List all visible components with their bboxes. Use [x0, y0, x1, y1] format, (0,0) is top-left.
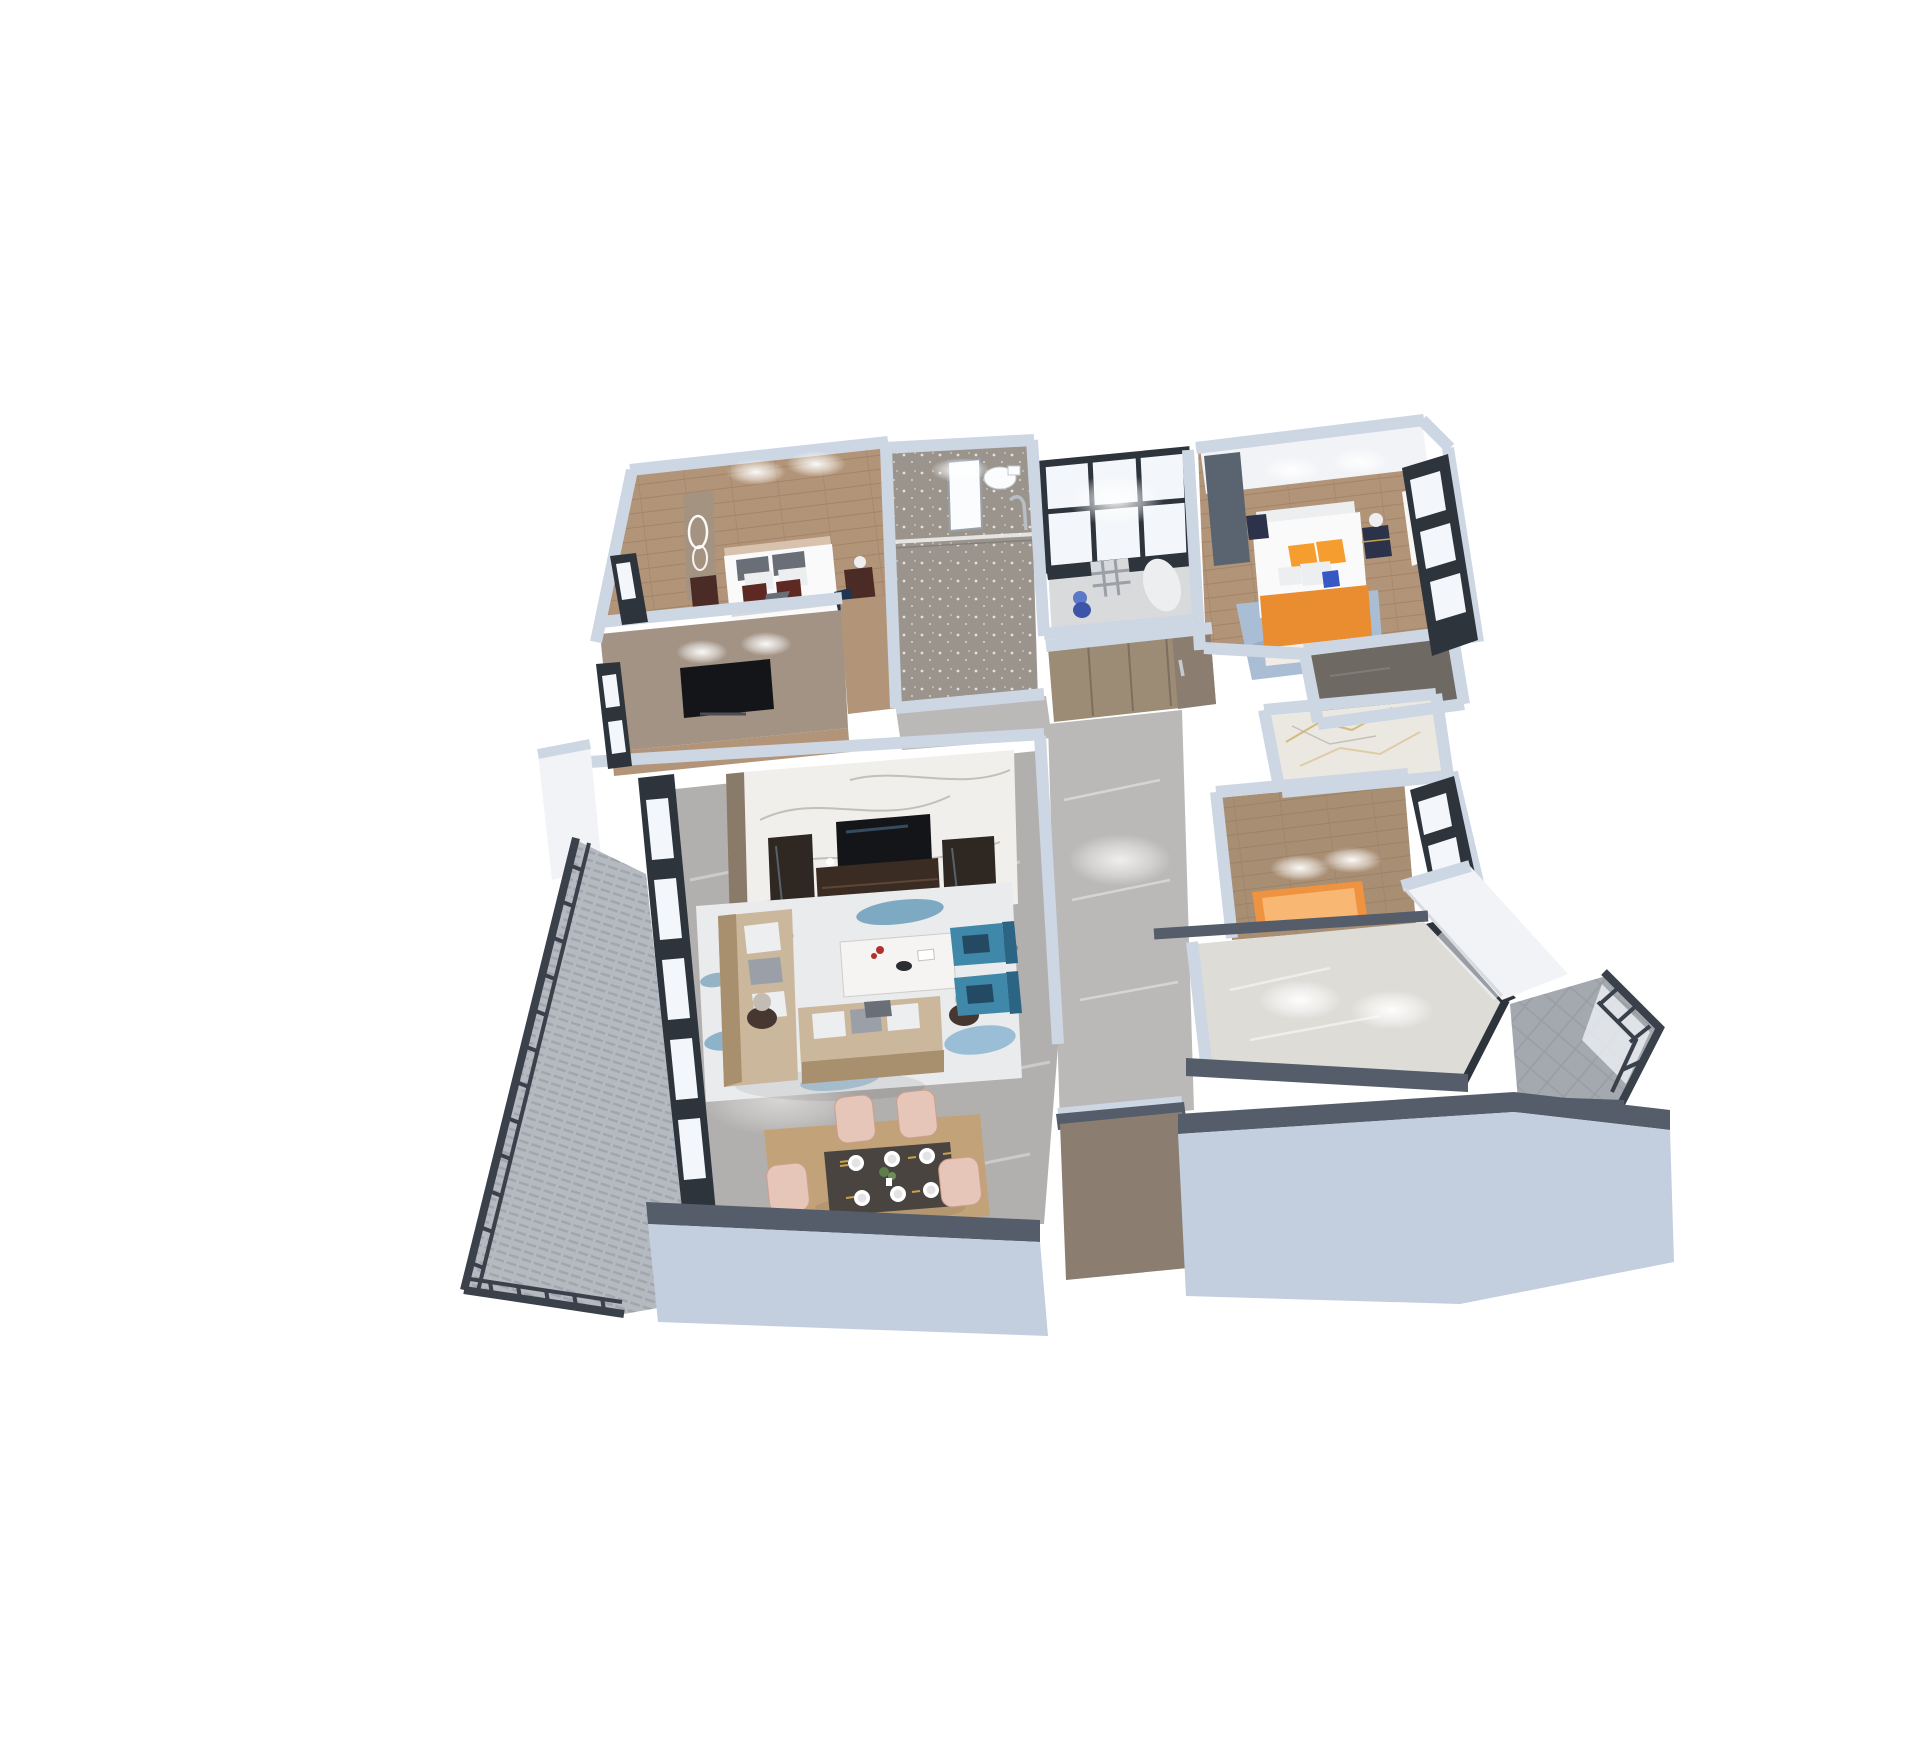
- table-decor: [896, 961, 912, 971]
- spotlight: [676, 640, 728, 664]
- corridor-floor: [1048, 710, 1194, 1124]
- sofa-pillow: [886, 1003, 920, 1031]
- nightstand-left: [690, 575, 719, 609]
- toilet-tank: [1008, 466, 1020, 475]
- sofa-pillow: [812, 1011, 846, 1039]
- pink-chair: [938, 1156, 983, 1208]
- spotlight: [740, 632, 792, 656]
- floor-plan-page: ​: [0, 0, 1920, 1754]
- sofa-pillow: [744, 922, 781, 954]
- spotlight: [930, 458, 990, 482]
- checkered-mat: [1090, 558, 1132, 598]
- spotlight: [1330, 449, 1390, 475]
- table-lamp: [1369, 513, 1383, 527]
- blue-armchair-2: [954, 971, 1022, 1016]
- floor-plan-render: ​: [0, 0, 1920, 1754]
- spotlight: [1262, 457, 1322, 483]
- flat-tv: [680, 659, 774, 718]
- ceiling-glow: [1258, 980, 1342, 1020]
- south-wall-face: [648, 1224, 1048, 1336]
- spotlight: [786, 451, 846, 477]
- table-lamp: [854, 556, 866, 568]
- balcony-southeast: [1510, 972, 1660, 1106]
- red-flowers: [876, 946, 884, 954]
- spotlight: [1322, 847, 1382, 873]
- hall-glow: [1068, 834, 1172, 886]
- white-pillow: [1278, 566, 1302, 586]
- spotlight: [1270, 855, 1330, 881]
- spotlight: [726, 459, 786, 485]
- pink-chair: [766, 1162, 811, 1214]
- ceiling-glow: [1350, 990, 1434, 1030]
- pink-chair: [896, 1089, 939, 1139]
- table-tray: [918, 949, 935, 961]
- corridor-wall-face: [1060, 1112, 1188, 1280]
- sofa-pillow-dark: [864, 1000, 892, 1018]
- bathroom: [888, 444, 1038, 708]
- hallway: [1048, 710, 1194, 1124]
- sofa-pillow: [748, 957, 783, 985]
- red-flowers: [871, 953, 877, 959]
- orange-pillow: [1316, 539, 1346, 565]
- drum-lamp-left: [753, 993, 771, 1011]
- pink-chair: [834, 1094, 877, 1144]
- blue-toy-body: [1073, 602, 1091, 618]
- blue-accent-pillow: [1322, 570, 1340, 588]
- nightstand-left: [1246, 514, 1269, 540]
- console-decor: [826, 858, 834, 866]
- kids-room: [1042, 450, 1194, 636]
- southeast-wall-face: [1178, 1112, 1674, 1304]
- room-glow: [1068, 474, 1164, 526]
- blue-armchair-1: [950, 921, 1018, 966]
